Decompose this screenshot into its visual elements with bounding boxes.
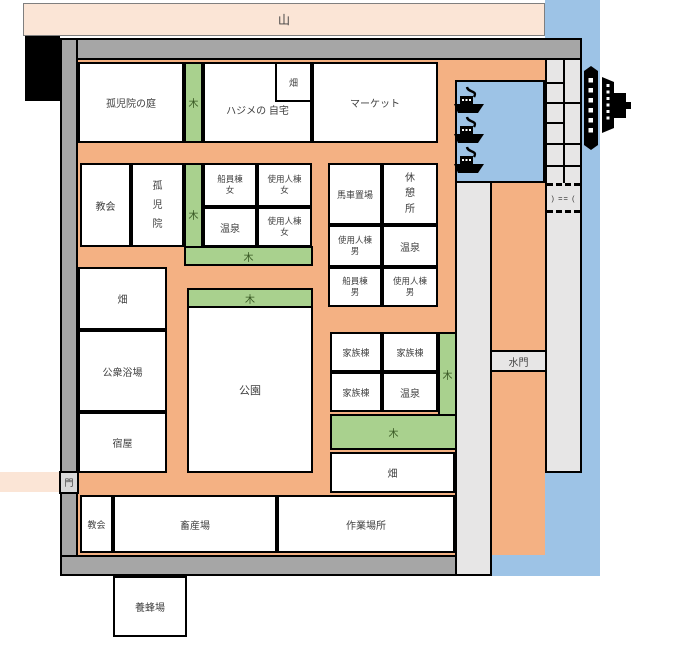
block-field-southeast: 畑	[330, 452, 455, 493]
rest-area-label: 休 憩 所	[405, 171, 415, 218]
church-label: 教会	[96, 198, 116, 213]
block-orphanage-garden: 孤児院の庭	[78, 62, 184, 143]
block-public-bath: 公衆浴場	[78, 330, 167, 412]
wall-bottom	[60, 555, 457, 576]
tree-strip-mid-horizontal: 木	[184, 246, 313, 266]
town-map: 山 ) == ( 水門 門 孤児院の庭 木 ハジメの 自宅 畑 マー	[0, 0, 688, 647]
pier-line	[547, 102, 580, 104]
hajime-home-label: ハジメの 自宅	[226, 102, 289, 117]
gate-label: 門	[64, 476, 73, 489]
orphanage-garden-label: 孤児院の庭	[106, 95, 156, 110]
block-home-field: 畑	[275, 62, 312, 102]
tree-label: 木	[389, 425, 399, 440]
hot-spring-label: 温泉	[400, 239, 420, 254]
tree-strip-top: 木	[184, 62, 203, 143]
tree-strip-family-vertical: 木	[438, 332, 457, 416]
block-orphanage: 孤 児 院	[131, 163, 184, 247]
wall-left	[60, 38, 78, 576]
carriage-depot-label: 馬車置場	[337, 188, 373, 201]
block-hot-spring-west: 温泉	[203, 207, 257, 247]
tree-label: 木	[245, 291, 255, 306]
servant-women-label: 使用人棟 女	[267, 216, 301, 239]
block-work-site: 作業場所	[277, 495, 455, 553]
harbor-lock-marker: ) == (	[552, 194, 576, 203]
block-church-south: 教会	[80, 495, 113, 553]
hot-spring-label: 温泉	[400, 385, 420, 400]
boat-icon	[453, 116, 485, 144]
tree-label: 木	[189, 95, 199, 110]
harbor-lock-cell: ) == (	[547, 183, 580, 213]
block-hot-spring-family: 温泉	[382, 372, 438, 412]
pier-breakwater: ) == (	[545, 58, 582, 473]
livestock-farm-label: 畜産場	[180, 517, 210, 532]
pier-line	[547, 165, 580, 167]
block-field-west: 畑	[78, 267, 167, 330]
boat-icon	[453, 146, 485, 174]
mountain-label: 山	[278, 11, 290, 28]
block-apiary: 養蜂場	[113, 576, 187, 637]
public-bath-label: 公衆浴場	[103, 364, 143, 379]
hot-spring-label: 温泉	[220, 220, 240, 235]
block-inn: 宿屋	[78, 412, 167, 473]
apiary-label: 養蜂場	[135, 599, 165, 614]
family-quarters-label: 家族棟	[342, 346, 369, 359]
church-label: 教会	[87, 518, 105, 531]
field-label: 畑	[289, 76, 298, 89]
block-family-2: 家族棟	[382, 332, 438, 372]
family-quarters-label: 家族棟	[396, 346, 423, 359]
tree-label: 木	[189, 207, 199, 222]
block-church-north: 教会	[80, 163, 131, 247]
inn-label: 宿屋	[113, 435, 133, 450]
pier-line	[547, 143, 580, 145]
block-market: マーケット	[312, 62, 438, 143]
block-park: 公園	[187, 306, 313, 473]
servant-men-label: 使用人棟 男	[338, 235, 372, 258]
block-family-1: 家族棟	[330, 332, 382, 372]
block-servant-women-1: 使用人棟 女	[257, 163, 312, 207]
block-livestock-farm: 畜産場	[113, 495, 277, 553]
block-sailor-women: 船員棟 女	[203, 163, 257, 207]
water-gate-bar: 水門	[492, 350, 545, 372]
tree-label: 木	[443, 367, 453, 382]
wall-top	[60, 38, 582, 60]
servant-women-label: 使用人棟 女	[267, 174, 301, 197]
corner-block	[25, 36, 60, 101]
tree-label: 木	[244, 249, 254, 264]
market-label: マーケット	[350, 95, 400, 110]
boat-icon	[453, 86, 485, 114]
pier-line	[547, 82, 563, 84]
servant-men-label: 使用人棟 男	[393, 276, 427, 299]
park-label: 公園	[239, 382, 261, 398]
mountain-strip: 山	[23, 3, 545, 36]
water-gate-label: 水門	[509, 354, 529, 369]
ship-icon	[583, 66, 631, 150]
tree-strip-park: 木	[187, 288, 313, 308]
block-servant-women-2: 使用人棟 女	[257, 207, 312, 247]
block-servant-men-2: 使用人棟 男	[382, 267, 438, 307]
sailor-men-label: 船員棟 男	[342, 276, 368, 299]
field-label: 畑	[388, 465, 398, 480]
dock-strip	[455, 181, 492, 576]
gate-cell: 門	[59, 471, 79, 494]
sailor-women-label: 船員棟 女	[217, 174, 243, 197]
block-hot-spring-east: 温泉	[382, 225, 438, 267]
tree-strip-family-horizontal: 木	[330, 414, 457, 450]
block-carriage-depot: 馬車置場	[328, 163, 382, 225]
block-family-3: 家族棟	[330, 372, 382, 412]
field-label: 畑	[118, 291, 128, 306]
work-site-label: 作業場所	[346, 517, 386, 532]
pier-line	[547, 122, 563, 124]
family-quarters-label: 家族棟	[342, 386, 369, 399]
orphanage-label: 孤 児 院	[153, 177, 163, 234]
block-servant-men-1: 使用人棟 男	[328, 225, 382, 267]
block-sailor-men: 船員棟 男	[328, 267, 382, 307]
block-rest-area: 休 憩 所	[382, 163, 438, 225]
gate-road	[0, 472, 60, 492]
